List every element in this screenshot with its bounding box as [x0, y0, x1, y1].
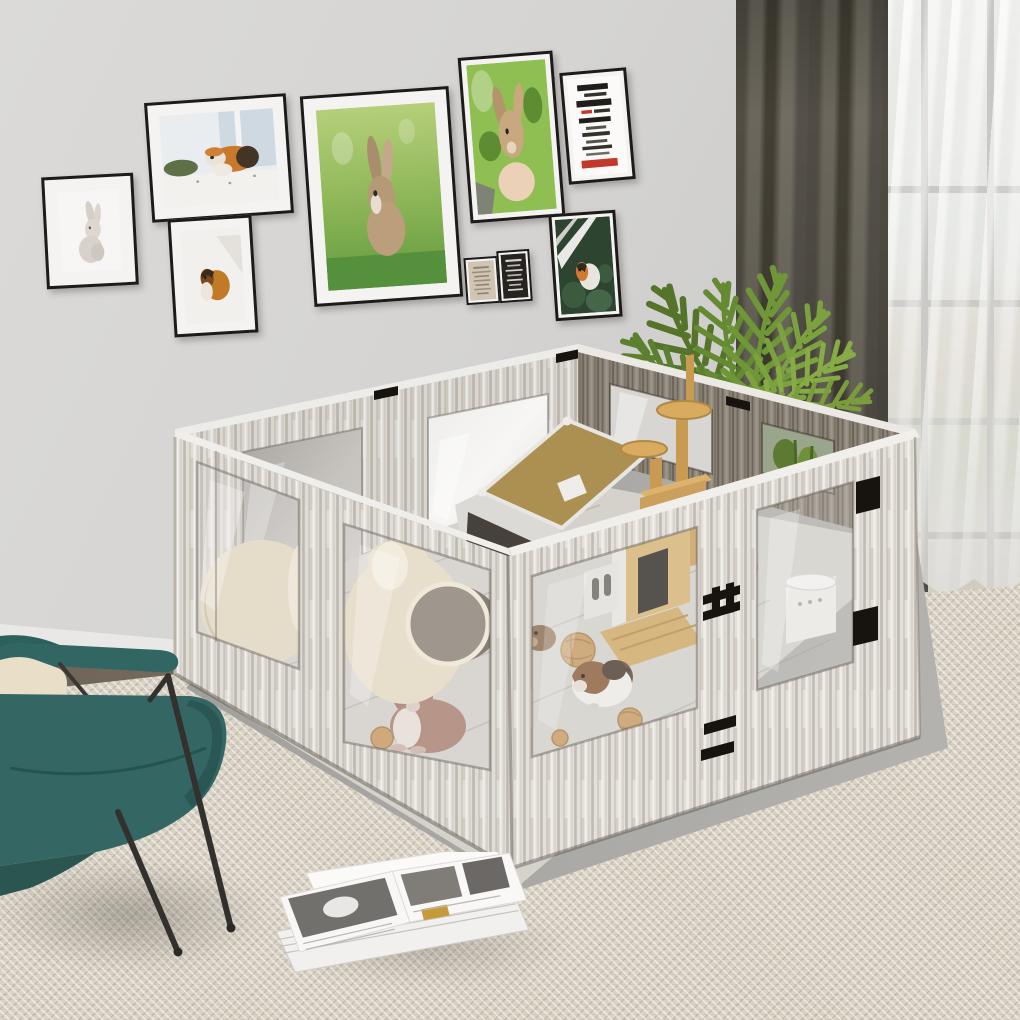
scene-root — [0, 0, 1020, 1020]
magazines — [262, 852, 572, 992]
hinge — [853, 606, 878, 646]
lounge-chair — [0, 600, 260, 1020]
hinge — [856, 476, 880, 514]
